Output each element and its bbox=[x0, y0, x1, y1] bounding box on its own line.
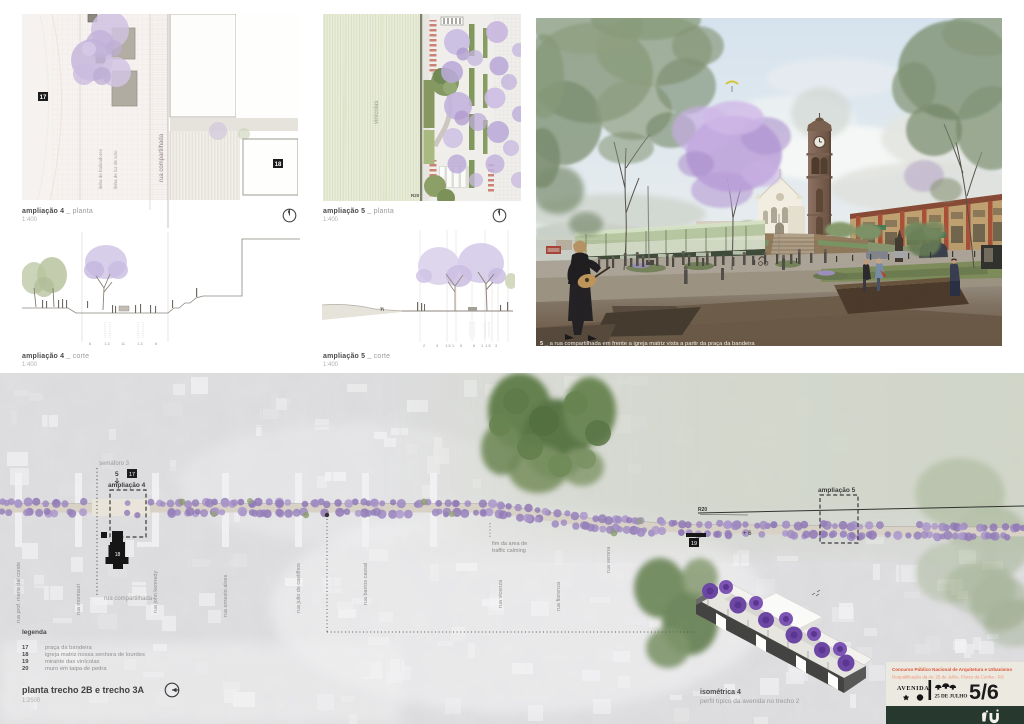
svg-text:planta trecho 2B e trecho 3A: planta trecho 2B e trecho 3A bbox=[22, 685, 145, 695]
svg-text:18: 18 bbox=[115, 552, 121, 558]
svg-text:3: 3 bbox=[495, 344, 497, 348]
svg-text:11: 11 bbox=[121, 342, 125, 346]
svg-text:19: 19 bbox=[691, 541, 697, 547]
svg-text:traffic calming: traffic calming bbox=[492, 548, 526, 554]
svg-text:ampliação 4: ampliação 4 bbox=[108, 482, 146, 489]
svg-text:rua compartilhada: rua compartilhada bbox=[104, 596, 153, 602]
svg-text:AVENIDA: AVENIDA bbox=[897, 685, 929, 692]
svg-text:rua vicenza: rua vicenza bbox=[498, 579, 504, 608]
svg-text:perfil típico da avenida no tr: perfil típico da avenida no trecho 2 bbox=[700, 698, 800, 705]
svg-text:Requalificação da Av. 25 de Ju: Requalificação da Av. 25 de Julho, Flore… bbox=[892, 675, 1004, 680]
svg-text:1: 1 bbox=[452, 344, 454, 348]
svg-text:19: 19 bbox=[22, 659, 29, 665]
svg-text:17: 17 bbox=[129, 472, 135, 478]
svg-text:muro em taipa de pedra: muro em taipa de pedra bbox=[45, 666, 107, 672]
svg-text:rua ernesto alves: rua ernesto alves bbox=[223, 575, 229, 617]
svg-text:18: 18 bbox=[22, 652, 29, 658]
svg-text:5: 5 bbox=[115, 471, 119, 478]
svg-text:25 DE JULHO: 25 DE JULHO bbox=[935, 694, 968, 700]
svg-text:6: 6 bbox=[155, 342, 157, 346]
svg-text:ampliação 5: ampliação 5 bbox=[818, 487, 856, 494]
svg-text:semáforo 3: semáforo 3 bbox=[99, 461, 130, 467]
svg-text:vinícolas: vinícolas bbox=[374, 101, 380, 124]
svg-text:1.5: 1.5 bbox=[485, 344, 490, 348]
svg-text:Concurso Público Nacional de A: Concurso Público Nacional de Arquitetura… bbox=[892, 667, 1012, 672]
svg-text:R20: R20 bbox=[698, 507, 707, 513]
svg-text:rua compartilhada: rua compartilhada bbox=[159, 133, 165, 182]
svg-text:rua verona: rua verona bbox=[606, 546, 612, 573]
svg-text:5/6: 5/6 bbox=[969, 680, 999, 704]
svg-text:linha de luz de solo: linha de luz de solo bbox=[113, 150, 118, 189]
svg-text:4: 4 bbox=[436, 344, 438, 348]
svg-text:17: 17 bbox=[40, 95, 47, 101]
svg-text:5 _ a rua compartilhada em fre: 5 _ a rua compartilhada em frente a igre… bbox=[540, 341, 755, 346]
svg-text:R20: R20 bbox=[411, 193, 420, 198]
svg-text:rua prof. maria dal conde: rua prof. maria dal conde bbox=[16, 562, 22, 623]
svg-text:rua julio de castilhos: rua julio de castilhos bbox=[296, 563, 302, 613]
svg-text:rua montauri: rua montauri bbox=[76, 584, 82, 615]
svg-text:1:2500: 1:2500 bbox=[22, 698, 41, 704]
svg-text:rua john kennedy: rua john kennedy bbox=[153, 571, 159, 613]
svg-text:rua fiorenza: rua fiorenza bbox=[556, 581, 562, 611]
svg-text:praça da bandeira: praça da bandeira bbox=[45, 645, 93, 651]
svg-text:rua barros cassal: rua barros cassal bbox=[363, 563, 369, 605]
svg-text:20: 20 bbox=[22, 666, 28, 672]
svg-text:18: 18 bbox=[275, 162, 282, 168]
svg-text:+ 6: + 6 bbox=[743, 531, 752, 537]
svg-text:1: 1 bbox=[481, 344, 483, 348]
svg-text:1.5: 1.5 bbox=[445, 344, 450, 348]
svg-text:1.3: 1.3 bbox=[104, 342, 109, 346]
svg-text:isométrica 4: isométrica 4 bbox=[700, 689, 741, 696]
svg-text:1.3: 1.3 bbox=[137, 342, 142, 346]
svg-text:6: 6 bbox=[460, 344, 462, 348]
svg-text:2: 2 bbox=[423, 344, 425, 348]
svg-text:linha de balizadores: linha de balizadores bbox=[98, 148, 103, 189]
svg-text:6: 6 bbox=[89, 342, 91, 346]
svg-text:17: 17 bbox=[22, 645, 28, 651]
svg-text:fim da area de: fim da area de bbox=[492, 541, 527, 547]
svg-text:6: 6 bbox=[473, 344, 475, 348]
svg-text:igreja matriz nossa senhora de: igreja matriz nossa senhora de lourdes bbox=[45, 652, 145, 658]
svg-text:legenda: legenda bbox=[22, 629, 47, 636]
svg-text:mirante das vinícolas: mirante das vinícolas bbox=[45, 659, 100, 665]
